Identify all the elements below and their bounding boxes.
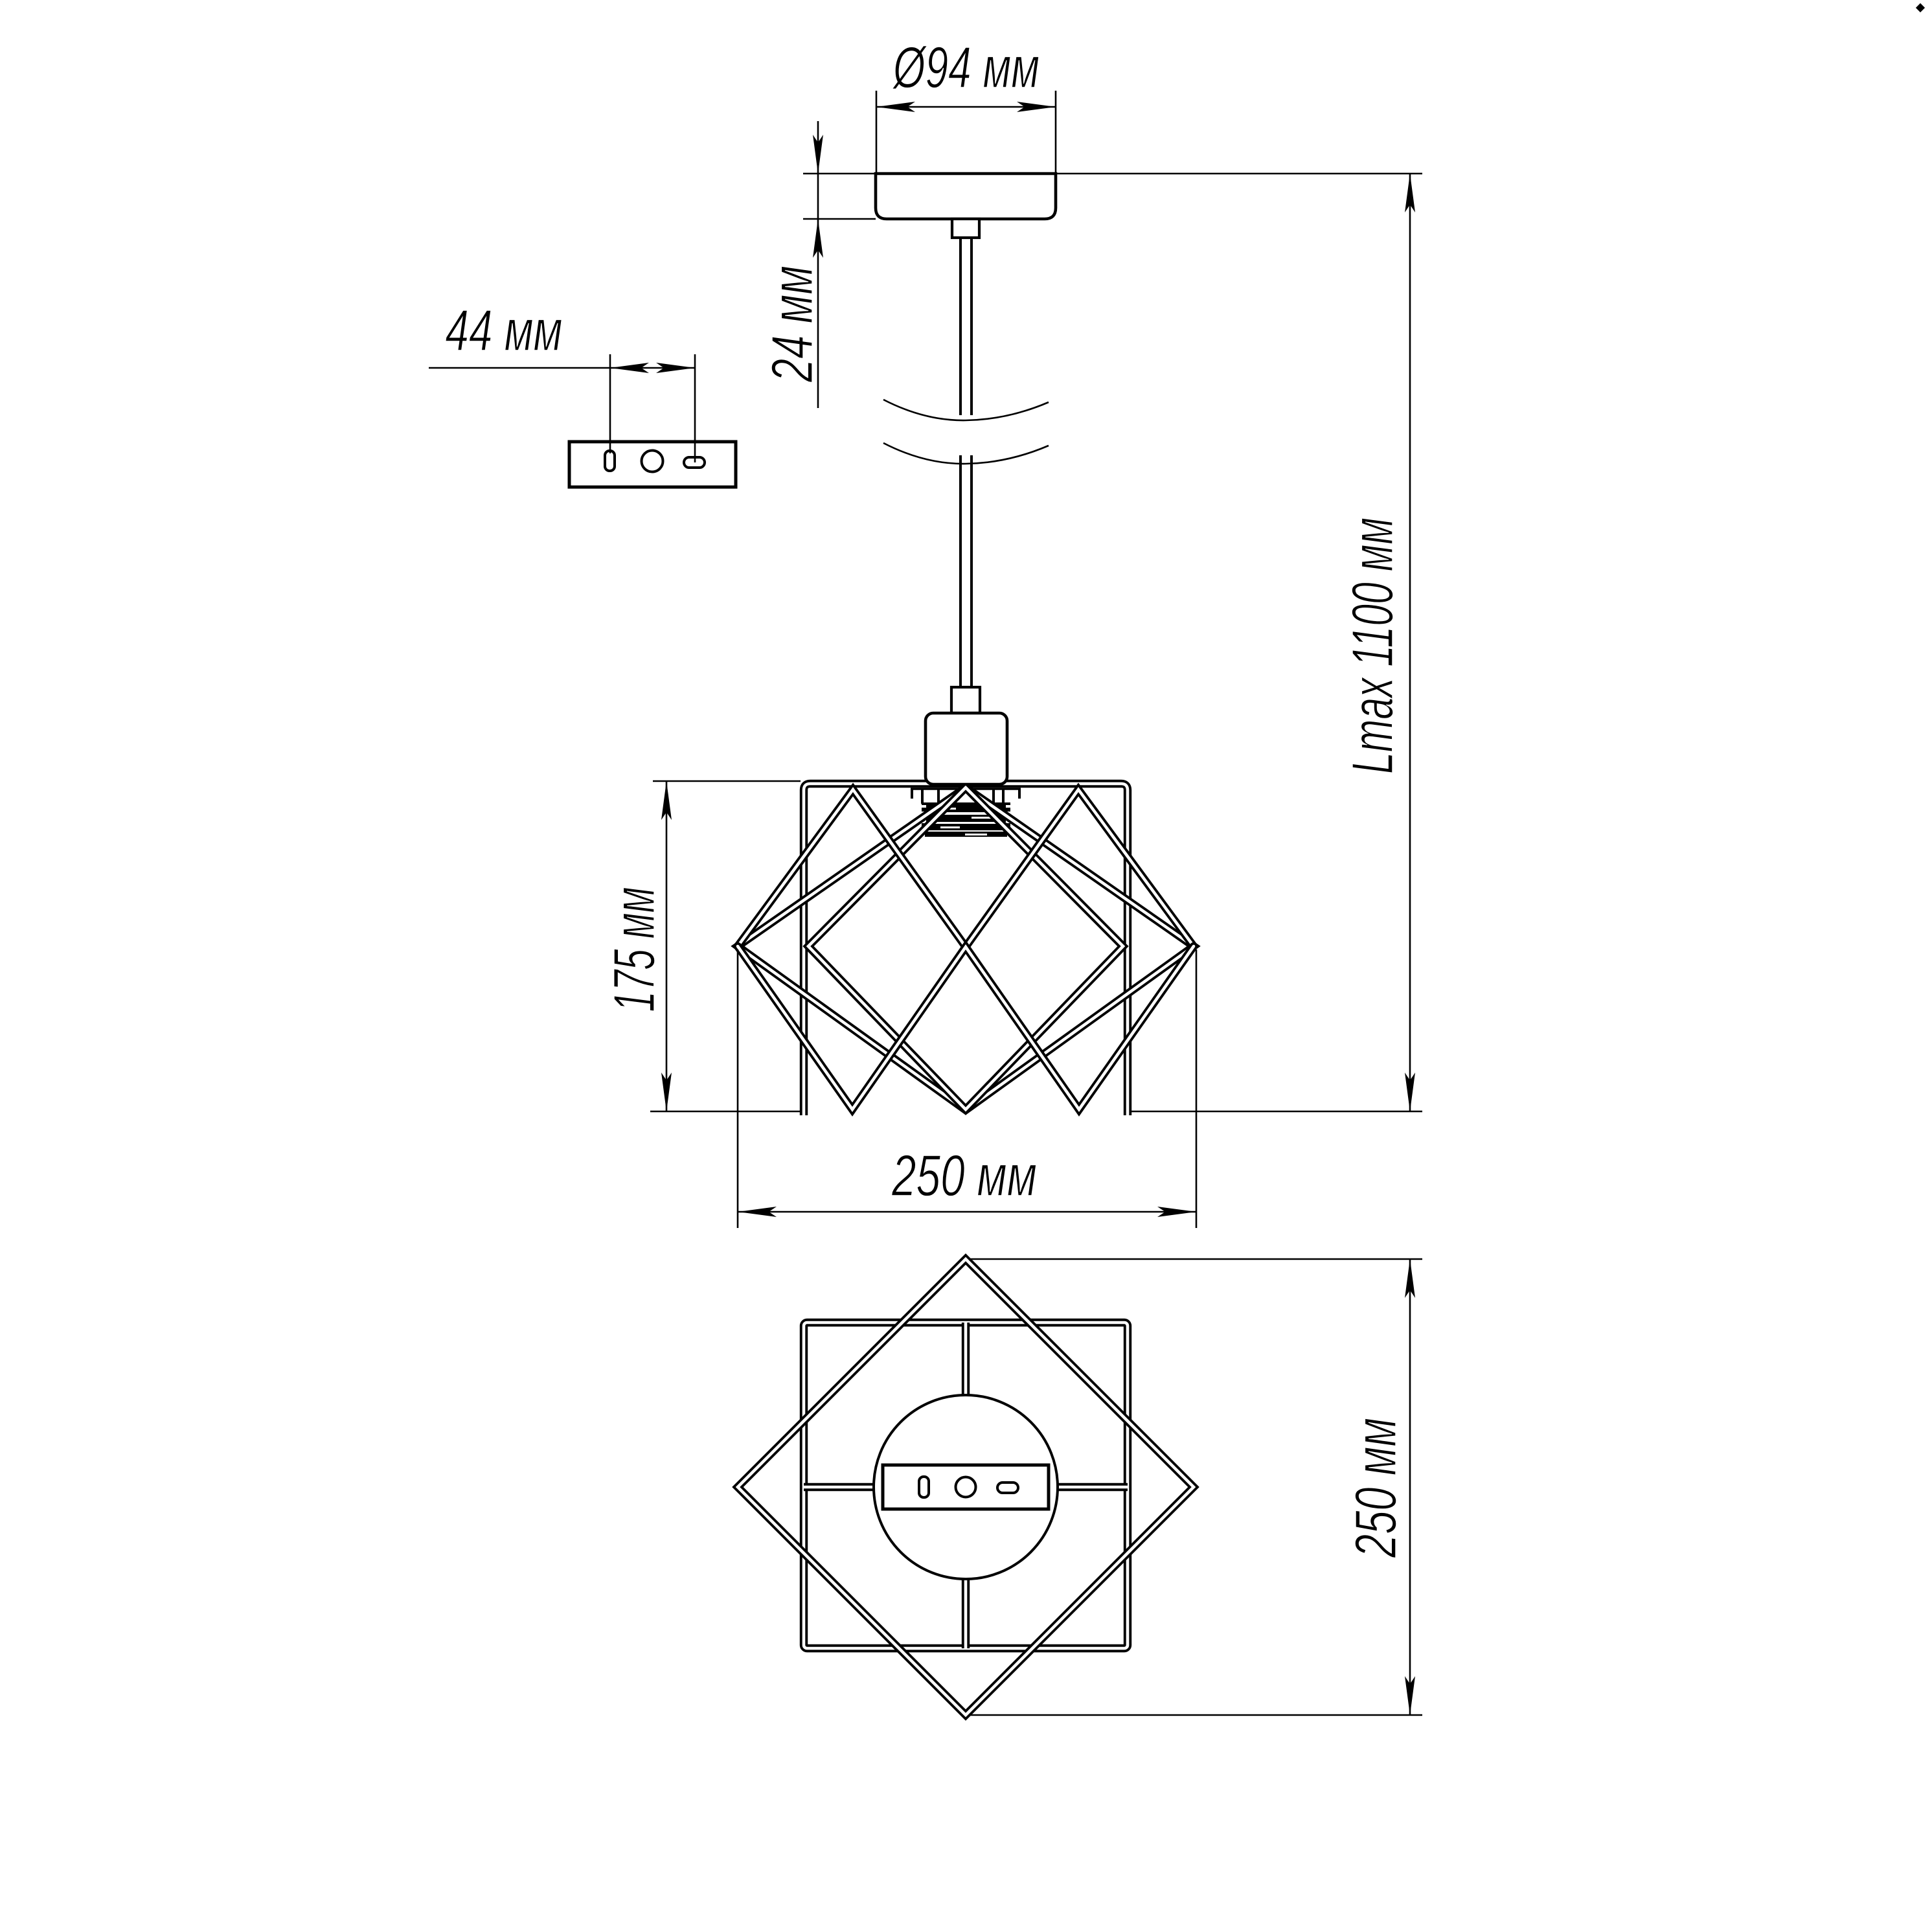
svg-text:250 мм: 250 мм [1344, 1418, 1409, 1558]
svg-text:Lmax 1100 мм: Lmax 1100 мм [1341, 517, 1405, 774]
svg-text:175 мм: 175 мм [602, 887, 667, 1012]
svg-text:44 мм: 44 мм [446, 299, 563, 363]
svg-text:Ø94 мм: Ø94 мм [892, 36, 1040, 100]
svg-text:24 мм: 24 мм [760, 266, 825, 383]
svg-text:250 мм: 250 мм [891, 1144, 1037, 1209]
